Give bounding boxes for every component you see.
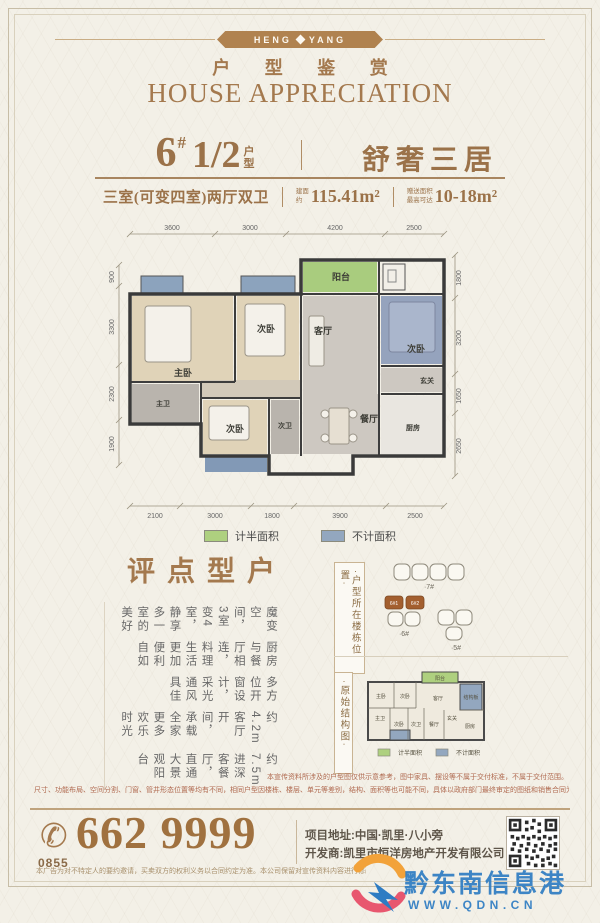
unit-layout: 三室(可变四室)两厅双卫 xyxy=(103,186,269,207)
legend-no-area-label: 不计面积 xyxy=(352,528,396,544)
brand-badge: HENG YANG xyxy=(217,31,383,48)
structure-room: 主卫 xyxy=(375,715,385,722)
phone-number: 662 9999 xyxy=(76,810,257,856)
watermark-logo xyxy=(346,852,410,918)
bonus-prefix: 赠送面积 最高可达 xyxy=(407,188,433,204)
legend-half-area-label: 计半面积 xyxy=(235,528,279,544)
review-comment: 魔变空间，3室变4室，静享多一室的美好 xyxy=(104,602,288,637)
legend-no-area: 不计面积 xyxy=(321,528,396,544)
unit-fraction-suffix: 户 型 xyxy=(244,146,255,171)
disclaimer-line-1: 本宣传资料所涉及的户型图仅供示意参考，图中家具、摆设等不属于交付标准，不属于交付… xyxy=(267,772,568,782)
unit-suffix-bottom: 型 xyxy=(244,158,255,171)
structure-room: 阳台 xyxy=(435,675,445,682)
unit-bonus: 10-18m² xyxy=(435,186,497,207)
room-label-dining: 餐厅 xyxy=(359,413,378,424)
room-label-living: 客厅 xyxy=(313,325,332,336)
dim-top-3: 4200 xyxy=(327,225,343,232)
room-label-bath1: 主卫 xyxy=(156,399,170,408)
bonus-prefix-top: 赠送面积 xyxy=(407,188,433,196)
dim-bottom-1: 2100 xyxy=(147,513,163,520)
dim-bottom-2: 3000 xyxy=(207,513,223,520)
room-label-bed3: 次卧 xyxy=(407,343,425,354)
phone-icon: ✆ xyxy=(40,816,68,855)
dim-left-4: 1900 xyxy=(109,436,116,452)
area-prefix: 建面 约 xyxy=(296,188,309,204)
review-title: 户型点评 xyxy=(118,556,278,602)
review-comment: 约7.5m进深客餐厅，直通大景观阳台 xyxy=(104,749,288,791)
room-label-bath2: 次卫 xyxy=(278,421,292,430)
dim-right-1: 1800 xyxy=(456,270,463,286)
plan-legend: 计半面积 不计面积 xyxy=(150,528,450,544)
structure-room: 厨房 xyxy=(465,723,475,730)
dim-top-4: 2500 xyxy=(406,225,422,232)
project-address: 项目地址:中国·凯里·八小旁 xyxy=(305,827,443,843)
brand-badge-left: HENG xyxy=(254,35,292,45)
dim-left-3: 2300 xyxy=(109,386,116,402)
spec-row: 三室(可变四室)两厅双卫 建面 约 115.41m² 赠送面积 最高可达 10-… xyxy=(85,186,515,207)
structure-room: 主卧 xyxy=(376,693,386,700)
unit-review: 户型点评 魔变空间，3室变4室，静享多一室的美好 厨房与餐厅相连，料理生活更加便… xyxy=(104,556,288,788)
room-label-kitchen: 厨房 xyxy=(406,423,420,432)
flyer-page: { "brand": { "badge_left": "HENG", "badg… xyxy=(0,0,600,923)
building-label-7: ·7# xyxy=(424,584,434,591)
dim-bottom-5: 2500 xyxy=(407,513,423,520)
disclaimer-line-2: 尺寸、功能布局、空间分割、门窗、管井形态位置等均有不同，相同户型因楼栋、楼层、单… xyxy=(34,785,569,795)
headline-divider xyxy=(301,140,302,170)
area-prefix-top: 建面 xyxy=(296,188,309,196)
building-label-5: ·5# xyxy=(451,645,461,652)
headline-rule xyxy=(95,177,505,179)
right-column-divider xyxy=(334,656,568,657)
page-title-cn: 户 型 鉴 赏 xyxy=(0,54,600,80)
structure-room: 次卧 xyxy=(394,721,404,728)
unit-number-group: 6 # 1/2 户 型 xyxy=(110,132,300,174)
dim-bottom-4: 3900 xyxy=(332,513,348,520)
structure-room: 结构板 xyxy=(463,694,478,701)
contact-divider xyxy=(296,820,297,864)
room-label-foyer: 玄关 xyxy=(420,376,434,385)
unit-bonus-group: 赠送面积 最高可达 10-18m² xyxy=(407,186,497,207)
review-comment: 厨房与餐厅相连，料理生活更加便利自如 xyxy=(104,637,288,672)
badge-line-left xyxy=(55,39,215,40)
floor-plan: 3600 3000 4200 2500 2100 3000 1800 3900 … xyxy=(83,220,483,526)
dim-top-1: 3600 xyxy=(164,225,180,232)
structure-room: 餐厅 xyxy=(429,721,439,728)
room-label-master: 主卧 xyxy=(174,367,192,378)
structure-room: 客厅 xyxy=(433,695,443,702)
unit-area: 115.41m² xyxy=(311,186,380,207)
no-area-swatch xyxy=(321,530,345,542)
structure-room: 玄关 xyxy=(447,715,457,722)
dim-right-2: 3200 xyxy=(456,330,463,346)
building-label-6: ·6# xyxy=(399,631,409,638)
room-label-bed4: 次卧 xyxy=(226,423,244,434)
diamond-icon xyxy=(295,35,305,45)
location-map: 6#1 6#2 ·7# ·6# ·5# xyxy=(360,556,530,656)
watermark-name: 黔东南信息港 xyxy=(404,864,566,900)
badge-line-right xyxy=(385,39,545,40)
page-title-en: HOUSE APPRECIATION xyxy=(0,78,600,109)
unit-suffix-top: 户 xyxy=(244,146,255,159)
dim-bottom-3: 1800 xyxy=(264,513,280,520)
dim-right-3: 1650 xyxy=(456,388,463,404)
structure-room: 次卫 xyxy=(411,721,421,728)
unit-name: 舒奢三居 xyxy=(330,138,530,178)
structure-plan: 主卧 次卧 客厅 结构板 主卫 次卧 次卫 餐厅 玄关 厨房 阳台 计半面积 不… xyxy=(360,664,520,764)
fine-print: 本广告为对不特定人的要约邀请，买卖双方的权利义务以合同约定为准。本公司保留对宣传… xyxy=(36,866,366,876)
review-comment: 约4.2m客厅开间，承载全家更多欢乐时光 xyxy=(104,707,288,749)
structure-label: ·原始结构图· xyxy=(334,672,353,774)
unit-area-group: 建面 约 115.41m² xyxy=(296,186,380,207)
highlight-unit-1: 6#1 xyxy=(390,601,399,607)
dim-left-2: 3300 xyxy=(109,319,116,335)
highlight-unit-2: 6#2 xyxy=(411,601,420,607)
structure-legend-half: 计半面积 xyxy=(398,749,422,757)
review-comment: 多方位开窗设计，采光通风具佳 xyxy=(104,672,288,707)
brand-badge-right: YANG xyxy=(309,35,346,45)
qr-code xyxy=(506,816,560,870)
dim-right-4: 2650 xyxy=(456,438,463,454)
unit-hash: # xyxy=(177,134,186,151)
room-label-balcony: 阳台 xyxy=(332,271,350,282)
structure-legend-no: 不计面积 xyxy=(456,749,480,757)
spec-separator xyxy=(282,187,283,207)
area-prefix-bottom: 约 xyxy=(296,197,309,205)
watermark-url: WWW.QDN.CN xyxy=(408,898,537,912)
spec-separator xyxy=(393,187,394,207)
room-label-bed2: 次卧 xyxy=(257,323,275,334)
dim-top-2: 3000 xyxy=(242,225,258,232)
legend-half-area: 计半面积 xyxy=(204,528,279,544)
half-area-swatch xyxy=(204,530,228,542)
bonus-prefix-bottom: 最高可达 xyxy=(407,197,433,205)
unit-fraction: 1/2 xyxy=(192,136,241,174)
structure-room: 次卧 xyxy=(400,693,410,700)
dim-left-1: 900 xyxy=(109,271,116,283)
unit-number: 6 xyxy=(155,132,176,174)
